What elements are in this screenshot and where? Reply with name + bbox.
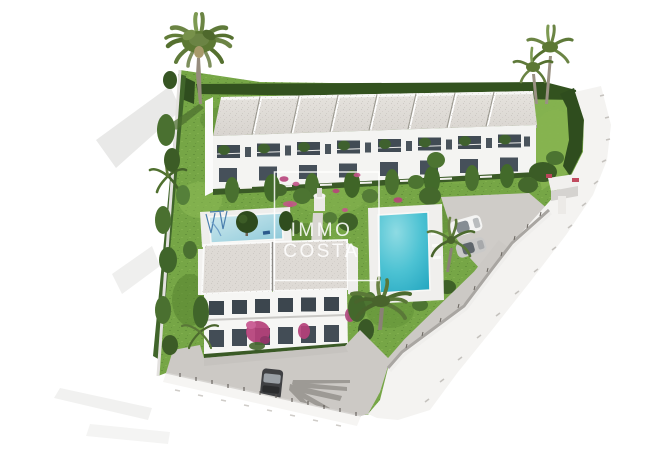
svg-text:COSTA: COSTA: [283, 241, 360, 262]
svg-text:IMMO: IMMO: [291, 220, 353, 241]
